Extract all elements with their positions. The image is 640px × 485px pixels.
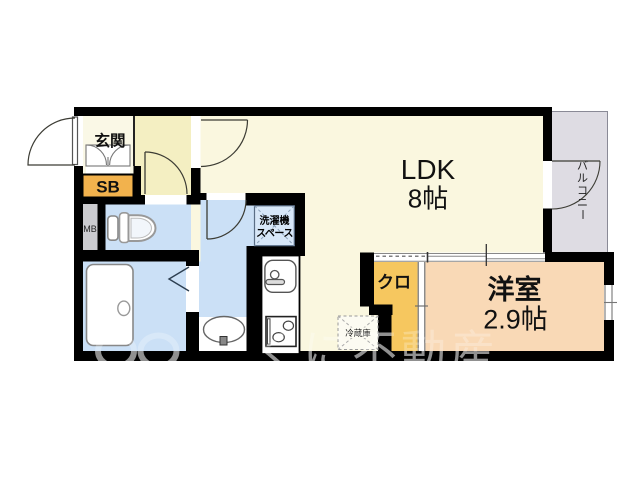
svg-text:ー: ー	[576, 209, 588, 220]
svg-text:クロ: クロ	[377, 273, 411, 292]
svg-text:ル: ル	[577, 173, 588, 185]
svg-text:SB: SB	[96, 178, 120, 197]
svg-text:LDK: LDK	[401, 154, 456, 185]
svg-text:コ: コ	[577, 185, 588, 197]
svg-text:MB: MB	[83, 224, 97, 234]
svg-text:8帖: 8帖	[408, 184, 448, 214]
svg-text:ニ: ニ	[577, 197, 588, 209]
svg-text:スペース: スペース	[256, 228, 293, 240]
svg-text:玄関: 玄関	[94, 131, 125, 150]
svg-text:洗濯機: 洗濯機	[260, 214, 290, 227]
svg-text:洋室: 洋室	[488, 274, 542, 305]
svg-text:バ: バ	[577, 160, 588, 173]
